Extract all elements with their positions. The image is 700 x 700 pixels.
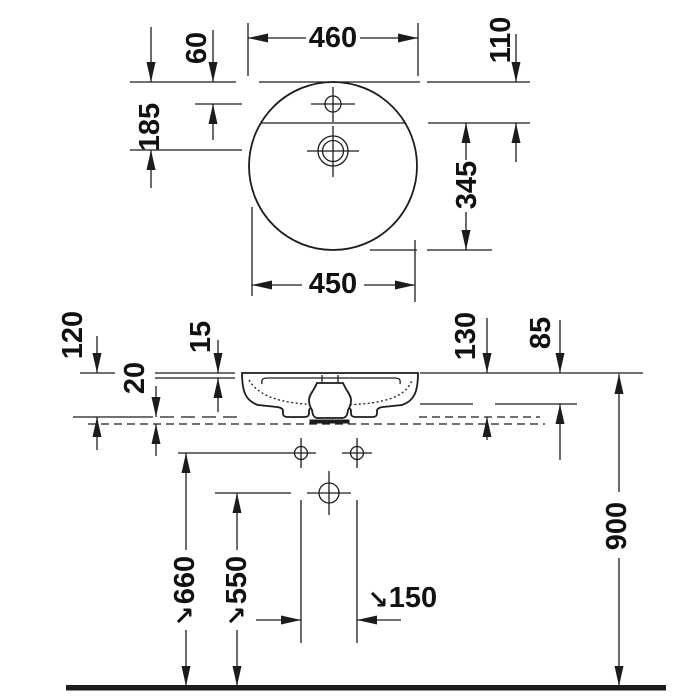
leader-arrow-icon: ↘	[170, 606, 199, 627]
fixing-hole-right	[342, 438, 372, 468]
dim-label-345: 345	[451, 161, 483, 209]
dim-label-450: 450	[309, 268, 357, 300]
dim-bowl-depth: 345	[451, 123, 483, 250]
dim-counter-thickness: 20	[119, 362, 156, 456]
floor-line	[66, 685, 666, 691]
waste-outlet-hole	[307, 471, 351, 515]
dim-label-110: 110	[485, 17, 517, 64]
dim-fixing-holes-height: 660 ↘	[169, 453, 201, 686]
dim-rear-ledge: 110	[485, 17, 517, 162]
leader-arrow-icon: ↘	[222, 606, 251, 627]
drain-hole	[307, 126, 359, 177]
dim-label-150: 150	[389, 582, 437, 614]
dim-drain-offset: 185	[134, 27, 166, 188]
dim-rim-height-from-floor: 900	[601, 374, 633, 686]
dim-faucet-offset: 60	[181, 30, 213, 140]
dim-label-85: 85	[525, 317, 557, 349]
dim-label-15: 15	[185, 321, 217, 353]
dim-label-20: 20	[119, 362, 151, 394]
front-view: 120 15 20 130 85 900	[57, 311, 666, 691]
faucet-hole	[311, 87, 355, 122]
leader-arrow-icon: ↘	[368, 585, 389, 614]
dim-rim-thickness: 15	[185, 321, 218, 412]
technical-drawing-canvas: 460 60 185 110 345	[0, 0, 700, 700]
dim-drain-height: 550 ↘	[221, 493, 253, 686]
dim-bowl-width: 450	[252, 207, 415, 302]
dim-label-660: 660	[169, 556, 201, 604]
dim-label-120: 120	[57, 311, 89, 359]
dim-fixing-holes-spacing: ↘ 150	[256, 582, 437, 620]
dim-overall-width: 460	[248, 22, 418, 76]
dim-height-above-counter: 120	[57, 311, 97, 450]
washbasin-dimension-drawing: 460 60 185 110 345	[0, 0, 700, 700]
dim-label-130: 130	[450, 312, 482, 360]
dim-total-height: 130	[450, 312, 487, 440]
dim-body-height: 85	[525, 317, 560, 460]
dim-label-185: 185	[134, 103, 166, 151]
dim-label-60: 60	[181, 32, 213, 64]
drain-column	[309, 383, 351, 418]
dim-label-900: 900	[601, 502, 633, 550]
top-view: 460 60 185 110 345	[130, 17, 530, 302]
dim-label-550: 550	[221, 556, 253, 604]
drain-outlet-bar	[310, 420, 350, 424]
dim-label-460: 460	[309, 22, 357, 54]
fixing-hole-left	[286, 438, 316, 468]
